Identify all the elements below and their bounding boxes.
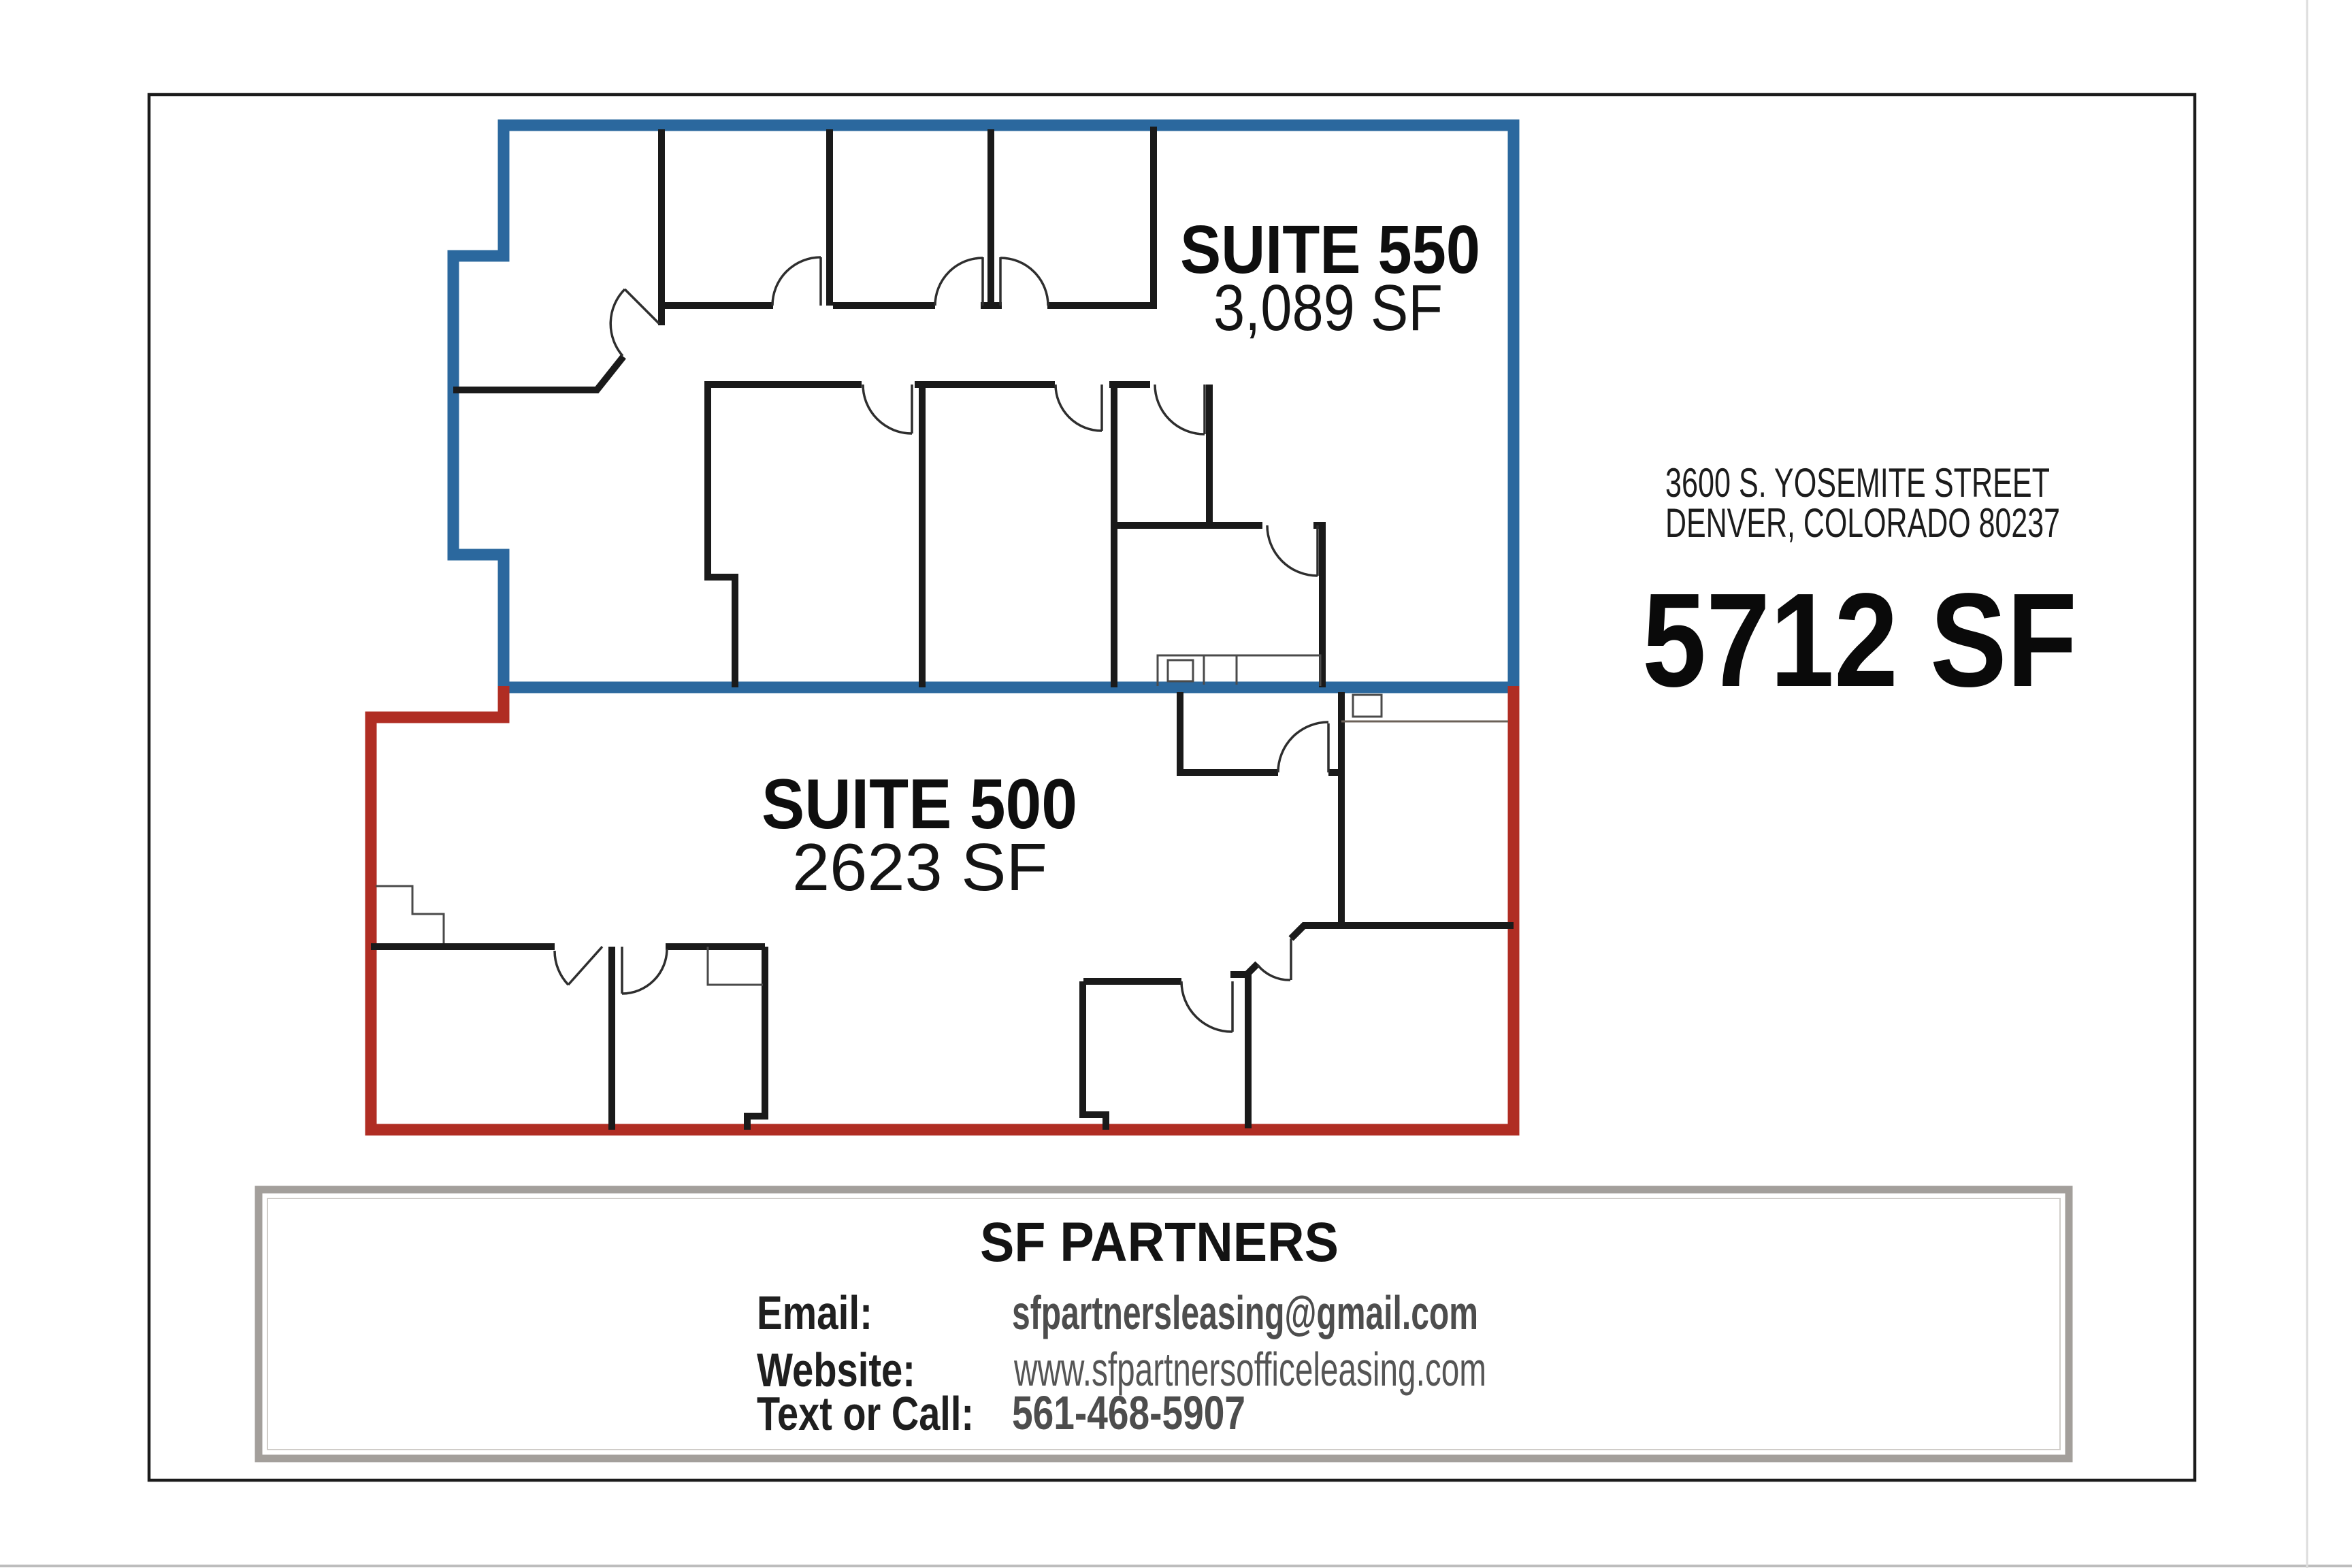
svg-text:2623 SF: 2623 SF [792, 830, 1047, 904]
svg-text:3600 S. YOSEMITE STREET: 3600 S. YOSEMITE STREET [1665, 460, 2050, 506]
svg-text:SF PARTNERS: SF PARTNERS [980, 1211, 1339, 1273]
svg-text:Email:: Email: [757, 1286, 872, 1339]
svg-text:DENVER, COLORADO 80237: DENVER, COLORADO 80237 [1665, 500, 2060, 546]
svg-text:5712 SF: 5712 SF [1642, 566, 2077, 715]
svg-text:3,089 SF: 3,089 SF [1213, 272, 1443, 344]
svg-text:Text or Call:: Text or Call: [757, 1387, 974, 1440]
svg-text:561-468-5907: 561-468-5907 [1012, 1386, 1245, 1439]
svg-text:sfpartnersleasing@gmail.com: sfpartnersleasing@gmail.com [1012, 1286, 1478, 1339]
